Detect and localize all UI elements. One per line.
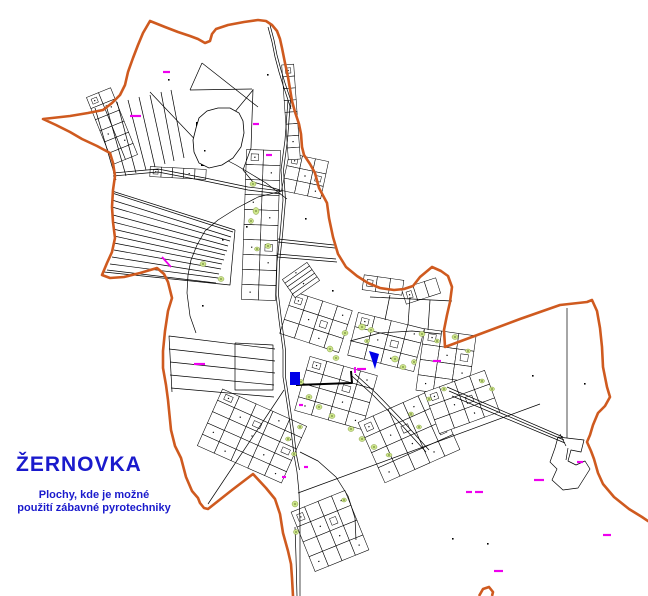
map-root: ŽERNOVKA Plochy, kde je možné použití zá… bbox=[0, 0, 648, 596]
map-subtitle: Plochy, kde je možné použití zábavné pyr… bbox=[4, 489, 184, 514]
map-subtitle-line2: použití zábavné pyrotechniky bbox=[4, 502, 184, 515]
map-subtitle-line1: Plochy, kde je možné bbox=[4, 489, 184, 502]
pond-layer bbox=[193, 108, 244, 168]
pyro-area-rect bbox=[290, 372, 300, 385]
page-title: ŽERNOVKA bbox=[16, 453, 142, 477]
